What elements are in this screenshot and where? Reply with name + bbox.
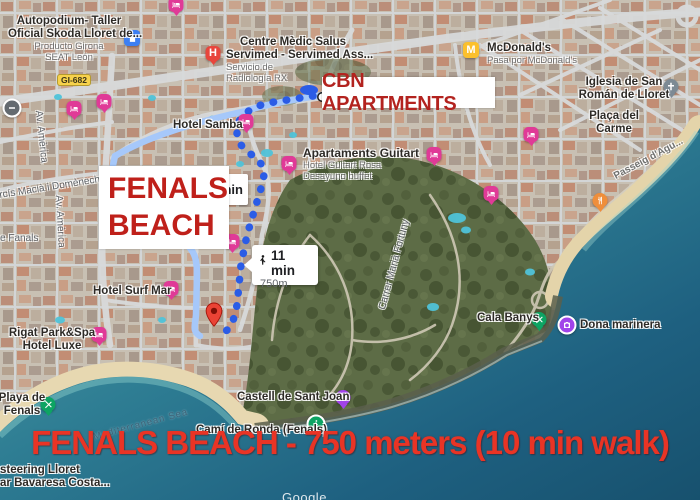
poi-label-steering[interactable]: steering Lloret ar Bavaresa Costa... xyxy=(0,464,110,490)
poi-label-placa-carme[interactable]: Plaça del Carme xyxy=(578,110,650,136)
poi-label-mcdonalds[interactable]: McDonald's Pasa por McDonald's xyxy=(487,42,577,66)
poi-label-playa-fenals[interactable]: Playa de Fenals xyxy=(0,392,46,418)
attraction-icon-dona-marinera[interactable] xyxy=(558,316,577,335)
poi-label-hotel-samba[interactable]: Hotel Samba xyxy=(173,119,243,132)
map-screenshot: H M Autopodium- Taller Oficial Skoda Llo… xyxy=(0,0,700,500)
street-label-fanals: e Fanals xyxy=(0,233,38,244)
road-badge-gi682: GI-682 xyxy=(57,74,91,86)
lodging-icon-guitart[interactable] xyxy=(282,156,297,171)
poi-label-iglesia[interactable]: Iglesia de San Román de Lloret xyxy=(575,76,673,102)
restaurant-icon[interactable] xyxy=(593,193,608,208)
lodging-icon[interactable] xyxy=(67,101,82,116)
cbn-apartments-callout: CBN APARTMENTS xyxy=(322,77,495,108)
lodging-icon[interactable] xyxy=(169,0,184,12)
closed-road-icon[interactable] xyxy=(3,99,22,118)
lodging-icon[interactable] xyxy=(524,127,539,142)
google-watermark: Google xyxy=(282,490,327,500)
poi-label-castell[interactable]: Castell de Sant Joan xyxy=(237,391,349,404)
walking-person-icon xyxy=(257,254,268,273)
hospital-icon[interactable]: H xyxy=(206,46,221,61)
lodging-icon[interactable] xyxy=(427,147,442,162)
poi-label-cala-banys[interactable]: Cala Banys xyxy=(477,312,539,325)
poi-label-guitart[interactable]: Apartaments Guitart Hotel Guitart Rosa D… xyxy=(303,147,419,182)
poi-label-rigat[interactable]: Rigat Park&Spa Hotel Luxe xyxy=(6,327,98,353)
walking-time-bubble[interactable]: 11 min 750m xyxy=(252,245,318,285)
poi-label-dona-marinera[interactable]: Dona marinera xyxy=(580,319,661,332)
fenals-beach-distance-banner: FENALS BEACH - 750 meters (10 min walk) xyxy=(0,424,700,462)
poi-label-hotel-surf-mar[interactable]: Hotel Surf Mar xyxy=(93,285,172,298)
lodging-icon[interactable] xyxy=(97,94,112,109)
mcdonalds-icon[interactable]: M xyxy=(463,42,479,58)
lodging-icon[interactable] xyxy=(484,186,499,201)
poi-label-autopodium[interactable]: Autopodium- Taller Oficial Skoda Lloret … xyxy=(8,15,130,63)
destination-pin[interactable] xyxy=(205,302,223,333)
fenals-beach-callout: FENALS BEACH xyxy=(99,166,229,249)
